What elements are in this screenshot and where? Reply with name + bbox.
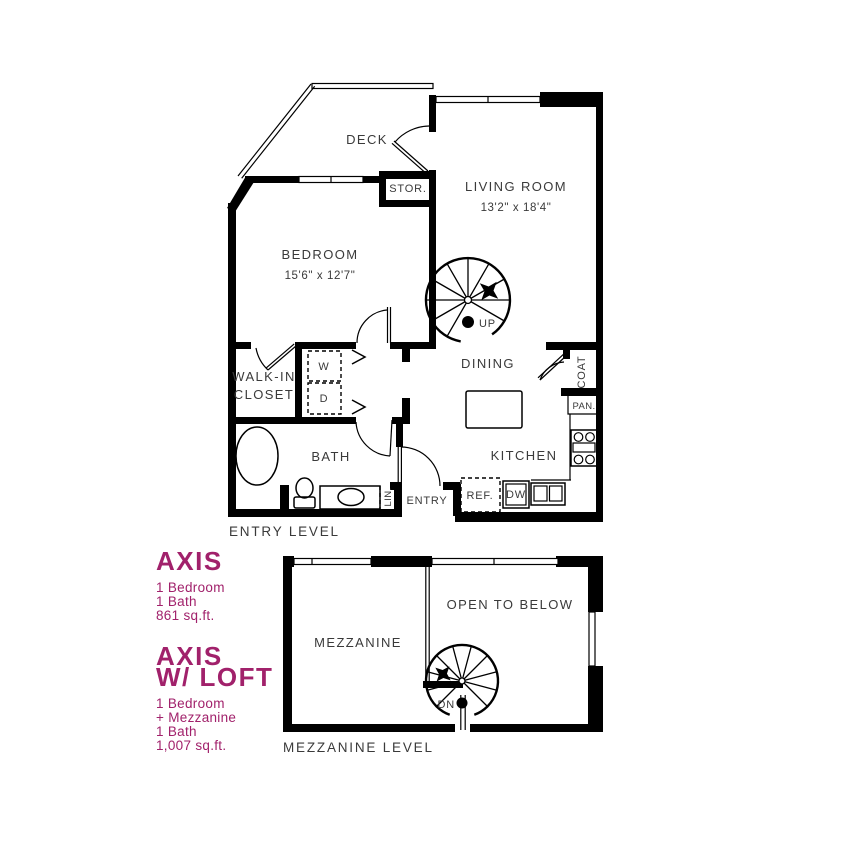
stair-entry-dot [457,698,468,709]
storage-label: STOR. [389,183,426,195]
coat-door [538,354,566,380]
stair-down-label: DN [438,699,456,711]
windows [299,97,540,183]
stair-direction-arrow [472,274,506,308]
mezzanine-floor-plan: MEZZANINE OPEN TO BELOW DN MEZZANINE LEV… [270,540,615,768]
kitchen-label: KITCHEN [491,448,558,463]
plan-detail: 1 Bath [156,725,273,739]
deck-door [392,126,429,173]
open-to-below-label: OPEN TO BELOW [447,597,574,612]
entry-door [398,447,440,486]
vanity-sink [320,486,380,509]
deck-railing [238,84,433,179]
plan-detail: 1 Bedroom [156,697,273,711]
plan-detail: + Mezzanine [156,711,273,725]
entry-level-caption: ENTRY LEVEL [229,524,340,539]
mezzanine-label: MEZZANINE [314,635,402,650]
toilet [294,478,315,508]
bedroom-door [357,307,391,343]
entry-level-floor-plan: DECK LIVING ROOM 13'2" x 18'4" BEDROOM 1… [215,70,615,545]
stair-up-label: UP [479,318,496,330]
mezzanine-level-caption: MEZZANINE LEVEL [283,740,434,755]
deck-label: DECK [346,132,388,147]
linen-label: LIN. [383,487,394,506]
pantry-label: PAN. [572,401,595,412]
plan-info-axis-loft: AXIS W/ LOFT 1 Bedroom + Mezzanine 1 Bat… [156,646,273,753]
bathtub [236,427,278,485]
dining-label: DINING [461,356,515,371]
refrigerator-label: REF. [466,490,493,502]
plan-title-axis: AXIS [156,551,225,572]
washer-label: W [318,361,329,373]
bath-label: BATH [311,449,350,464]
walk-in-closet-label-2: CLOSET [234,387,294,402]
plan-detail: 861 sq.ft. [156,609,225,623]
bath-door [356,420,392,456]
plan-info-axis: AXIS 1 Bedroom 1 Bath 861 sq.ft. [156,551,225,623]
plan-title-axis-loft-2: W/ LOFT [156,667,273,688]
dryer-label: D [320,393,329,405]
walk-in-closet-label-1: WALK-IN [232,369,296,384]
bedroom-label: BEDROOM [282,247,359,262]
plan-detail: 1 Bedroom [156,581,225,595]
spiral-stair-up [426,258,510,341]
kitchen-sink [531,483,565,505]
entry-label: ENTRY [406,495,447,507]
coat-label: COAT [576,356,588,389]
stair-entry-dot [462,316,474,328]
dining-table [466,391,522,428]
kitchen-counter [531,414,571,480]
living-room-label: LIVING ROOM [465,179,567,194]
plan-detail: 1 Bath [156,595,225,609]
washer-dryer [308,350,365,414]
plan-detail: 1,007 sq.ft. [156,739,273,753]
living-room-dims: 13'2" x 18'4" [481,202,552,214]
floorplan-page: DECK LIVING ROOM 13'2" x 18'4" BEDROOM 1… [0,0,844,844]
bedroom-dims: 15'6" x 12'7" [285,270,356,282]
range-stove [571,430,597,466]
dishwasher-label: DW [506,489,526,501]
closet-door [256,344,296,370]
